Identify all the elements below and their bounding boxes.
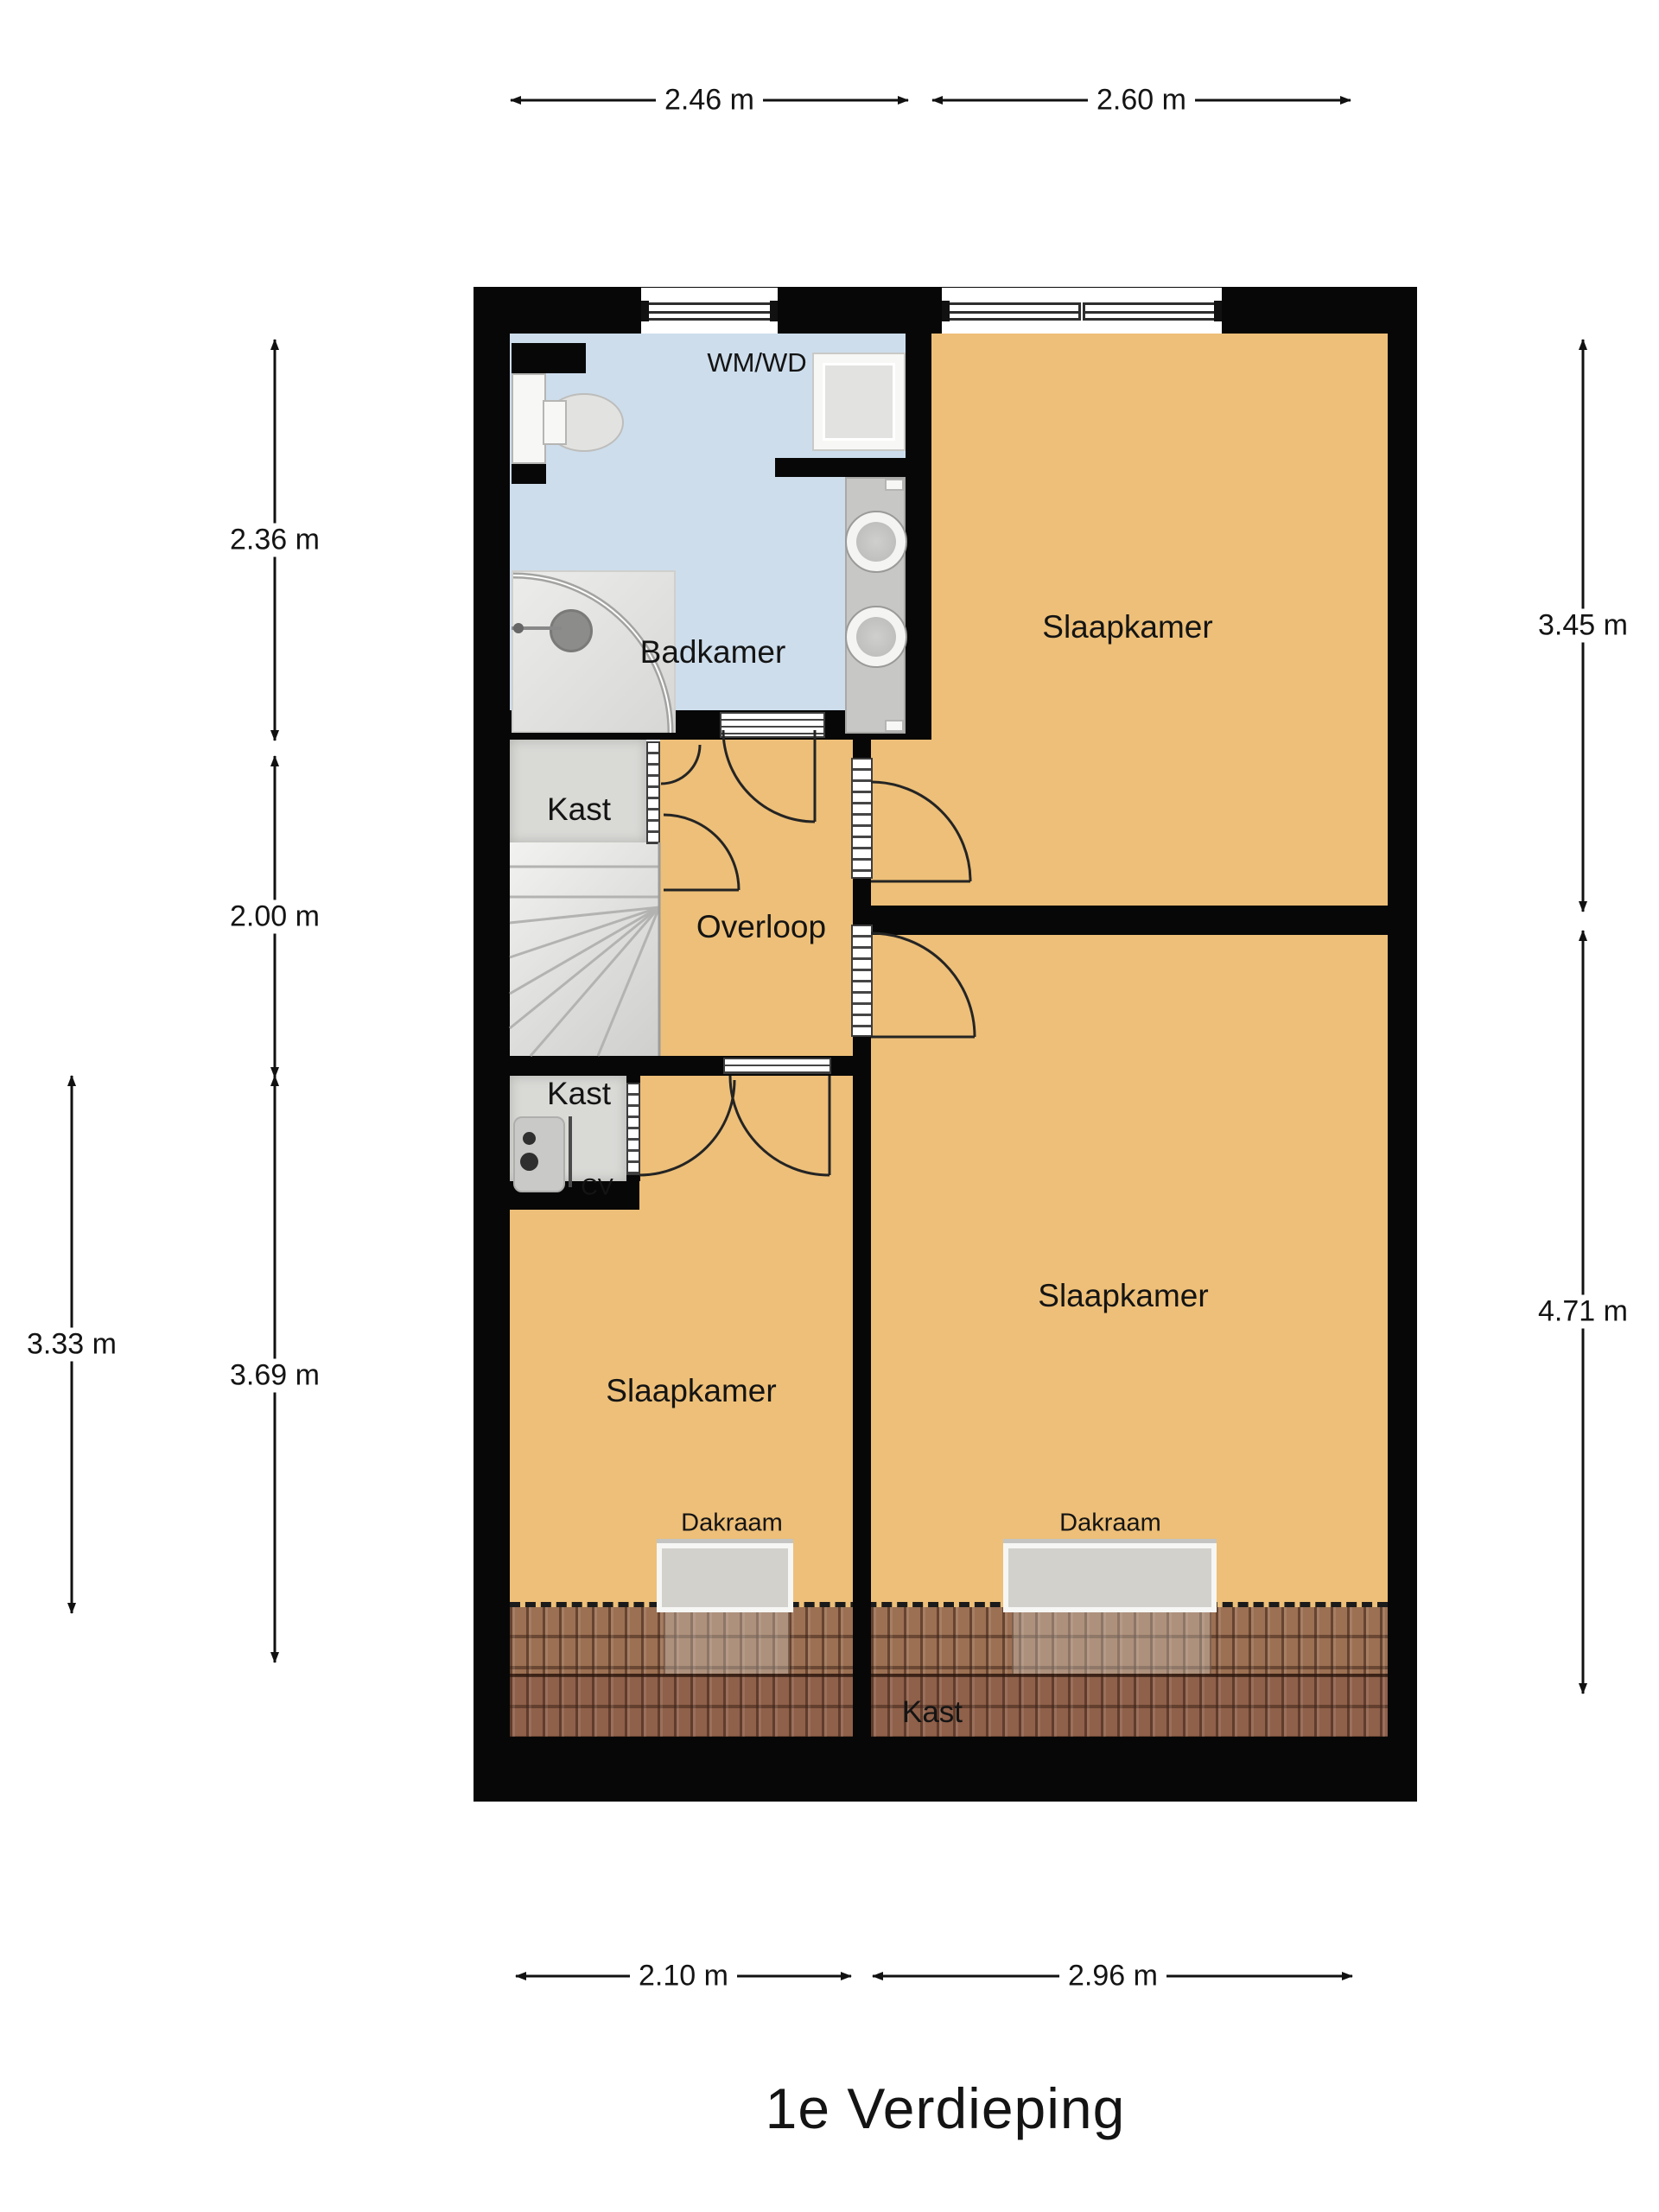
room-label-slaapkamer-top: Slaapkamer <box>1042 609 1212 645</box>
roof-tiles-row-top <box>510 1607 1388 1674</box>
window-badkamer-cap-left <box>641 301 649 321</box>
roof-window-right <box>1003 1543 1217 1612</box>
sink-counter-fitting-top <box>885 479 904 491</box>
room-slaapkamer-top-floor-ext <box>871 740 931 906</box>
roof-window-right-ghost <box>1012 1607 1211 1674</box>
wall-badkamer-right <box>906 334 931 710</box>
window-slaapkamer-top-glazing-right <box>1083 302 1217 321</box>
window-slaapkamer-top-glazing-left <box>946 302 1081 321</box>
sink-bottom-basin <box>856 617 896 657</box>
fixture-label-washer-dryer: WM/WD <box>707 347 806 378</box>
washing-machine-inner <box>823 363 895 441</box>
room-label-kast-roof: Kast <box>902 1695 963 1730</box>
cv-boiler-knob-small <box>523 1132 536 1145</box>
wall-outer-bottom <box>474 1737 1417 1802</box>
stairs-floor <box>510 842 659 1056</box>
sink-counter-fitting-bottom <box>885 720 904 732</box>
dim-label-left-369: 3.69 m <box>221 1359 328 1393</box>
sink-top-basin <box>856 522 896 562</box>
door-threshold-slaapkamer-left <box>723 1058 831 1074</box>
window-badkamer-cap-right <box>770 301 778 321</box>
roof-window-left-ghost <box>664 1607 790 1674</box>
dim-label-right-345: 3.45 m <box>1529 609 1637 643</box>
fixture-label-dakraam-left: Dakraam <box>681 1510 783 1538</box>
toilet-stub <box>512 464 546 484</box>
room-label-badkamer: Badkamer <box>640 634 786 671</box>
dim-label-top-260: 2.60 m <box>1088 84 1195 118</box>
door-threshold-slaapkamer-top <box>851 758 873 879</box>
room-label-slaapkamer-left: Slaapkamer <box>606 1373 776 1409</box>
dim-label-left-236: 2.36 m <box>221 524 328 557</box>
wall-corridor-divider <box>853 740 871 1737</box>
window-slaapkamer-top-cap-left <box>942 301 950 321</box>
dim-label-left-200: 2.00 m <box>221 900 328 934</box>
door-threshold-badkamer <box>720 712 825 738</box>
toilet-cistern <box>512 373 546 464</box>
wall-wm-stub <box>775 458 906 477</box>
roof-window-left <box>657 1543 793 1612</box>
wall-outer-left <box>474 287 510 1802</box>
dim-label-left-333: 3.33 m <box>18 1328 125 1362</box>
page-title: 1e Verdieping <box>766 2075 1126 2141</box>
window-slaapkamer-top-cap-right <box>1214 301 1222 321</box>
shower-drain <box>550 609 593 652</box>
dim-label-bottom-296: 2.96 m <box>1059 1960 1166 1993</box>
room-label-overloop: Overloop <box>696 909 826 945</box>
room-label-kast-top: Kast <box>547 791 611 828</box>
door-leaf-kast-top <box>646 741 660 844</box>
fixture-label-cv: CV <box>581 1174 613 1201</box>
cv-boiler <box>513 1116 565 1192</box>
fixture-label-dakraam-right: Dakraam <box>1059 1510 1161 1538</box>
door-threshold-slaapkamer-right <box>851 925 873 1037</box>
dim-label-bottom-210: 2.10 m <box>630 1960 737 1993</box>
dim-label-right-471: 4.71 m <box>1529 1295 1637 1329</box>
toilet-tank <box>512 343 586 373</box>
floor-plan-page: Badkamer WM/WD Slaapkamer Kast Overloop … <box>0 0 1659 2212</box>
cv-boiler-knob-large <box>520 1153 538 1171</box>
wall-outer-right <box>1388 287 1417 1802</box>
toilet-seat <box>543 400 567 445</box>
room-label-kast-cv: Kast <box>547 1076 611 1112</box>
window-badkamer-glazing <box>645 302 775 321</box>
room-label-slaapkamer-right: Slaapkamer <box>1038 1278 1208 1314</box>
room-overloop-floor <box>660 740 853 1056</box>
wall-bedroom-divider-horizontal <box>871 906 1388 935</box>
roof-knee-dashed-line <box>510 1602 1388 1607</box>
door-leaf-kast-cv <box>626 1083 640 1175</box>
dim-label-top-246: 2.46 m <box>656 84 763 118</box>
